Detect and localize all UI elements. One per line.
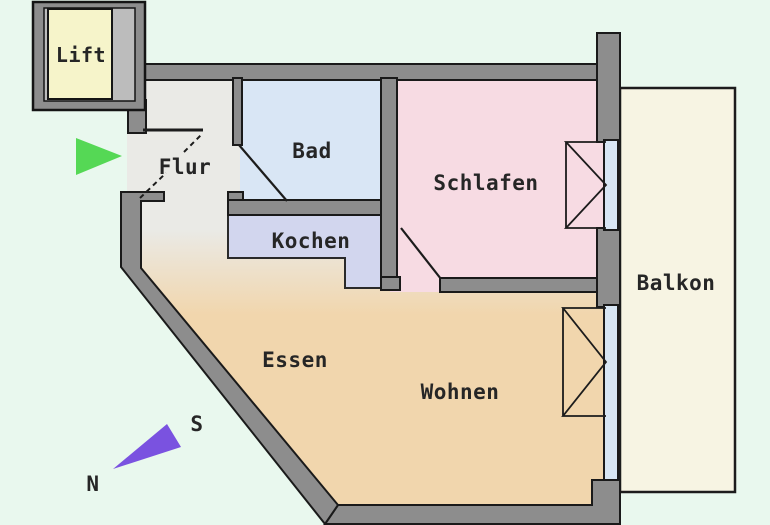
floorplan-image: Lift Flur Bad Kochen Schlafen Balkon Ess… (0, 0, 770, 525)
compass-south-label: S (190, 412, 203, 436)
flur-label: Flur (159, 155, 212, 179)
compass-north-label: N (86, 472, 99, 496)
wall-bad-left (233, 78, 242, 145)
wall-schlafen-left-foot (381, 277, 400, 290)
windows-glass (604, 140, 618, 480)
wall-right-upper (597, 33, 620, 142)
lift-label: Lift (56, 43, 106, 67)
wall-top (143, 64, 597, 80)
essen-label: Essen (262, 348, 328, 372)
schlafen-label: Schlafen (433, 171, 538, 195)
wohnen-label: Wohnen (421, 380, 500, 404)
balkon-label: Balkon (637, 271, 716, 295)
wall-schlafen-left (381, 78, 397, 290)
bad-label: Bad (292, 139, 331, 163)
kochen-label: Kochen (272, 229, 351, 253)
wall-schlafen-bottom (440, 278, 597, 292)
wall-right-middle (597, 228, 620, 307)
wohnen-window-glass (604, 305, 618, 480)
floorplan-svg: Lift Flur Bad Kochen Schlafen Balkon Ess… (0, 0, 770, 525)
wall-bad-bottom (228, 200, 390, 215)
